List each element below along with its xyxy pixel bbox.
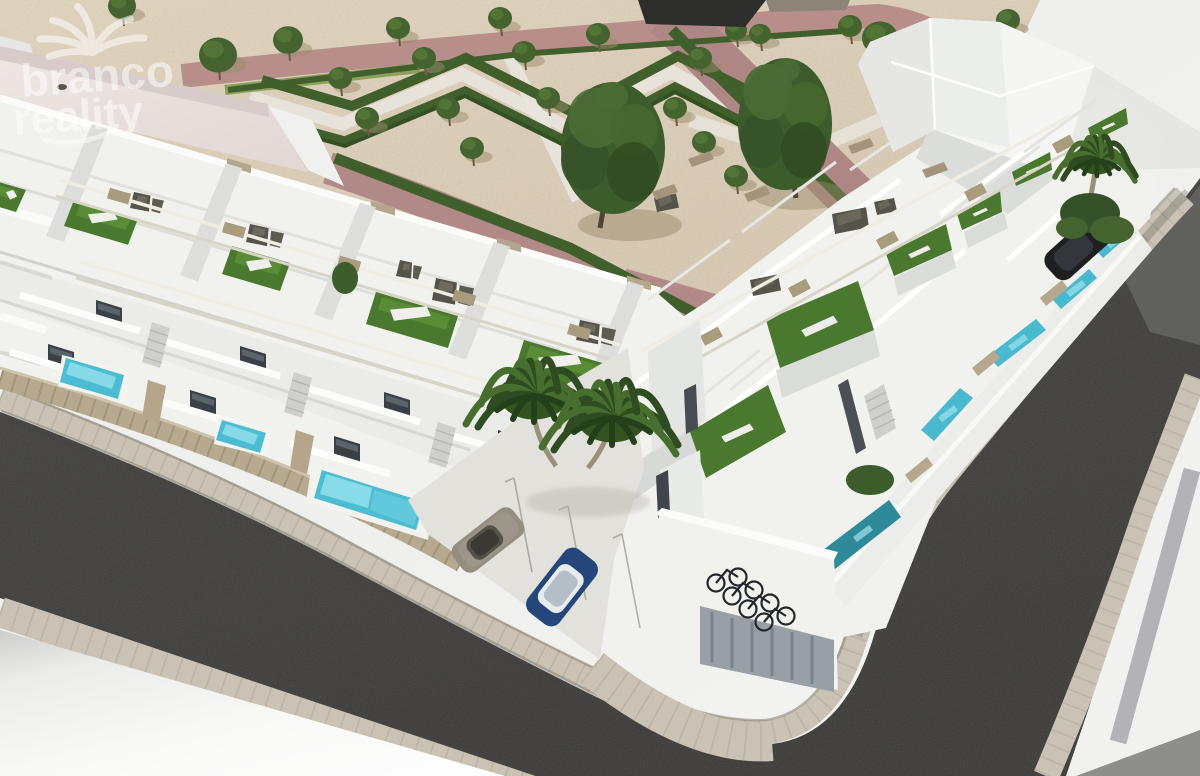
svg-text:reality: reality [12,87,145,145]
